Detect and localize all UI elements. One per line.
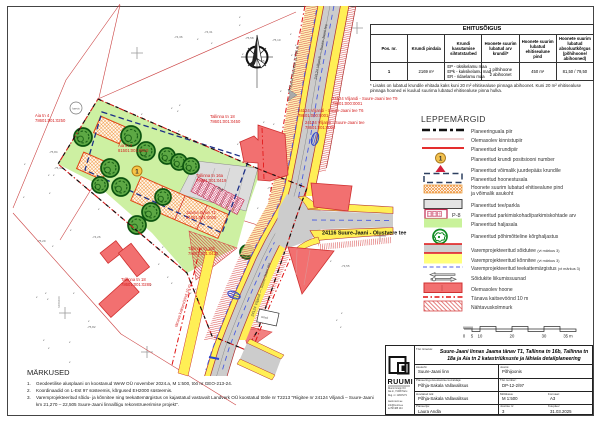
svg-text:35 m: 35 m (563, 334, 573, 339)
svg-text:v: v (167, 275, 169, 279)
svg-text:81501:001:0810: 81501:001:0810 (118, 148, 149, 153)
svg-text:-75,82: -75,82 (87, 325, 96, 329)
svg-text:6480400: 6480400 (57, 296, 61, 308)
svg-text:-73,55: -73,55 (341, 264, 350, 268)
svg-text:v: v (49, 191, 51, 195)
svg-text:tänava kaitsevöönd 10 m: tänava kaitsevöönd 10 m (173, 283, 192, 327)
svg-text:v: v (70, 228, 72, 232)
svg-text:-75,58: -75,58 (245, 36, 254, 40)
svg-text:v: v (48, 346, 50, 350)
svg-text:0: 0 (463, 334, 466, 339)
svg-text:v: v (211, 41, 213, 45)
svg-text:v: v (98, 207, 100, 211)
svg-text:-75,84: -75,84 (49, 150, 58, 154)
svg-text:v: v (23, 195, 25, 199)
svg-text:v: v (291, 53, 293, 57)
svg-text:v: v (88, 319, 90, 323)
svg-text:v: v (24, 162, 26, 166)
svg-text:v: v (290, 32, 292, 36)
svg-text:v: v (239, 15, 241, 19)
svg-text:v: v (52, 244, 54, 248)
svg-text:v: v (53, 173, 55, 177)
svg-text:RUUMI: RUUMI (388, 377, 414, 386)
svg-text:v: v (330, 259, 332, 263)
svg-text:24116 Suure-Jaani - Olustvere: 24116 Suure-Jaani - Olustvere tee (322, 231, 406, 237)
svg-text:v: v (177, 109, 179, 113)
svg-text:v: v (45, 291, 47, 295)
svg-text:v: v (69, 340, 71, 344)
svg-text:v: v (336, 318, 338, 322)
svg-text:v: v (43, 338, 45, 342)
svg-text:-74,36: -74,36 (174, 35, 183, 39)
svg-text:78601:001:0419: 78601:001:0419 (196, 178, 227, 183)
svg-text:-74,26: -74,26 (92, 235, 101, 239)
svg-text:v: v (141, 112, 143, 116)
svg-text:v: v (179, 103, 181, 107)
svg-text:78601:001:0250: 78601:001:0250 (35, 118, 66, 123)
svg-text:kaevis: kaevis (72, 107, 80, 111)
svg-text:v: v (47, 297, 49, 301)
svg-text:v: v (263, 120, 265, 124)
svg-text:v: v (69, 360, 71, 364)
svg-text:v: v (36, 295, 38, 299)
svg-text:78601:001:0450: 78601:001:0450 (210, 119, 241, 124)
svg-text:v: v (73, 291, 75, 295)
svg-text:-75,10: -75,10 (272, 38, 281, 42)
svg-text:v: v (190, 291, 192, 295)
svg-text:v: v (197, 37, 199, 41)
svg-text:v: v (158, 262, 160, 266)
svg-text:30: 30 (542, 334, 547, 339)
svg-text:78601:000:0001: 78601:000:0001 (332, 101, 363, 106)
svg-text:5: 5 (471, 334, 474, 339)
svg-text:20: 20 (510, 334, 515, 339)
svg-text:v: v (242, 52, 244, 56)
svg-text:81501:001:0005: 81501:001:0005 (186, 215, 217, 220)
svg-text:v: v (178, 129, 180, 133)
svg-text:v: v (280, 89, 282, 93)
svg-text:v: v (239, 23, 241, 27)
svg-text:-74,31: -74,31 (204, 30, 213, 34)
svg-text:78601:001:0280: 78601:001:0280 (121, 282, 152, 287)
svg-text:78601:000:0001: 78601:000:0001 (298, 113, 329, 118)
svg-text:78601:001:0002: 78601:001:0002 (305, 125, 336, 130)
svg-text:1: 1 (135, 168, 139, 175)
svg-text:10: 10 (478, 334, 483, 339)
svg-text:v: v (257, 206, 259, 210)
svg-text:v: v (48, 173, 50, 177)
svg-text:78601:001:0428: 78601:001:0428 (188, 251, 219, 256)
svg-text:v: v (340, 325, 342, 329)
svg-text:v: v (341, 311, 343, 315)
svg-text:v: v (171, 281, 173, 285)
svg-text:v: v (273, 122, 275, 126)
svg-text:v: v (171, 106, 173, 110)
